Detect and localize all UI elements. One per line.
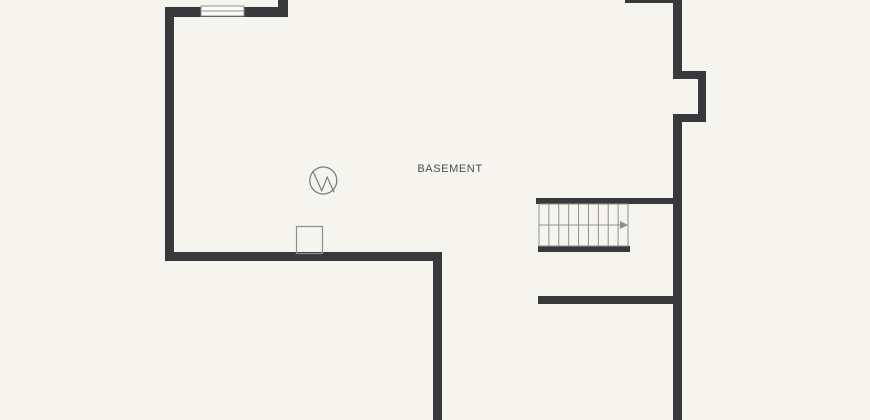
floorplan-canvas: BASEMENT — [0, 0, 870, 420]
room-label: BASEMENT — [417, 163, 482, 175]
left-wall — [165, 7, 174, 261]
floorplan-svg — [0, 0, 870, 420]
support-post — [297, 227, 323, 254]
utility-symbol-zigzag — [313, 171, 334, 193]
lower-right-partition-wall — [538, 296, 674, 304]
stairwell-bottom-wall — [538, 246, 630, 252]
stairwell-top-wall — [536, 198, 673, 204]
stair-direction-arrow-icon — [620, 221, 628, 229]
right-wall-lower — [673, 114, 682, 420]
center-vertical-wall — [433, 252, 442, 420]
top-wall-stub-up — [278, 0, 288, 17]
right-wall-upper — [673, 0, 682, 79]
